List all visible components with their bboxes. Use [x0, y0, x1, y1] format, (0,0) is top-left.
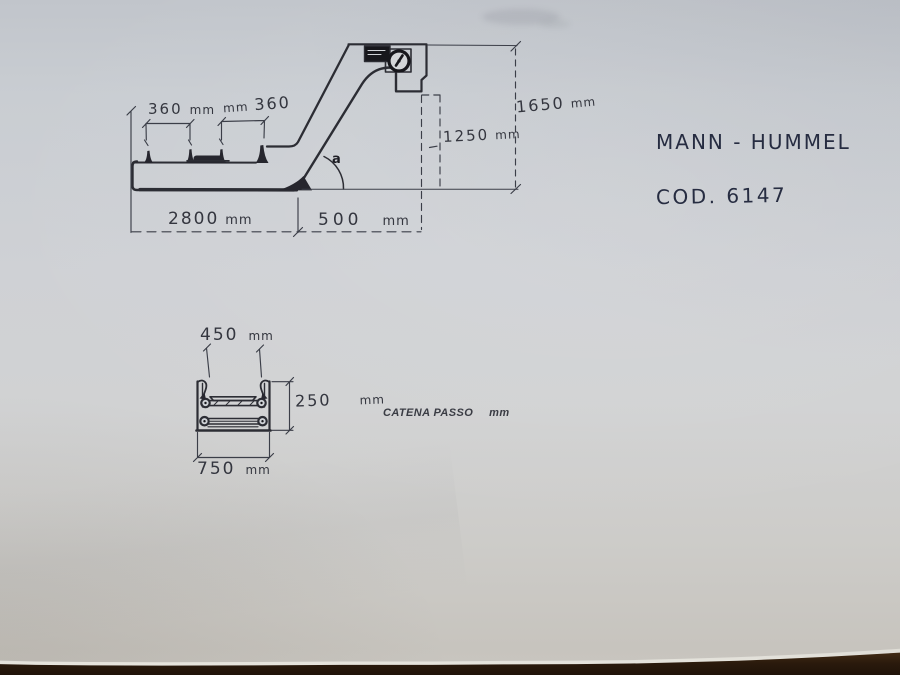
wall-inner-lines — [203, 384, 265, 408]
dim-unit: mm — [495, 128, 521, 141]
dim-value: 450 — [200, 327, 238, 344]
chain-pitch-unit: mm — [489, 408, 509, 419]
drawing-code: COD. 6147 — [656, 185, 788, 207]
dim-bottom-width-label: 750 mm — [197, 461, 271, 478]
dim-pitch-right-label: mm 360 — [223, 95, 292, 116]
dim-depth-label: 250 mm — [295, 390, 385, 409]
dim-pitch-left-label: 360 mm — [148, 102, 215, 117]
dim-unit: mm — [245, 464, 270, 476]
dim-unit: mm — [225, 214, 252, 227]
dim-unit: mm — [248, 330, 273, 342]
incline-lower-edge — [297, 68, 397, 191]
dim-unit: mm — [359, 393, 385, 406]
trough-cross-section — [197, 381, 271, 431]
dim-value: 250 — [295, 392, 332, 409]
dim-projection-label: 500 mm — [318, 212, 410, 229]
dim-value: 750 — [197, 461, 235, 478]
dim-top-width-label: 450 mm — [200, 327, 274, 344]
chain-upper — [200, 393, 268, 408]
sprocket-hub — [397, 59, 400, 62]
dim-horizontal-length-label: 2800 mm — [168, 211, 253, 228]
dim-unit: mm — [570, 96, 596, 110]
dim-value: 1650 — [515, 95, 565, 115]
chain-lower — [200, 417, 266, 427]
dim-value: 360 — [254, 95, 292, 114]
dim-value: 360 — [148, 102, 183, 117]
photographed-drawing: 360 mm mm 360 1650 mm 1250 mm 2800 mm 50… — [0, 0, 900, 675]
dim-unit: mm — [382, 215, 409, 228]
dim-value: 1250 — [443, 128, 490, 145]
chain-pitch-label: CATENA PASSO mm — [383, 408, 510, 419]
company-name: MANN - HUMMEL — [656, 132, 851, 152]
motor-icon — [365, 46, 391, 62]
technical-drawing — [0, 0, 900, 675]
dim-value: 500 — [318, 212, 362, 229]
chain-pitch-text: CATENA PASSO — [383, 408, 473, 419]
dim-unit: mm — [190, 104, 215, 116]
dim-value: 2800 — [168, 211, 219, 228]
angle-label: a — [332, 153, 341, 166]
dim-unit: mm — [223, 101, 249, 115]
conveyor-outline — [133, 162, 298, 191]
